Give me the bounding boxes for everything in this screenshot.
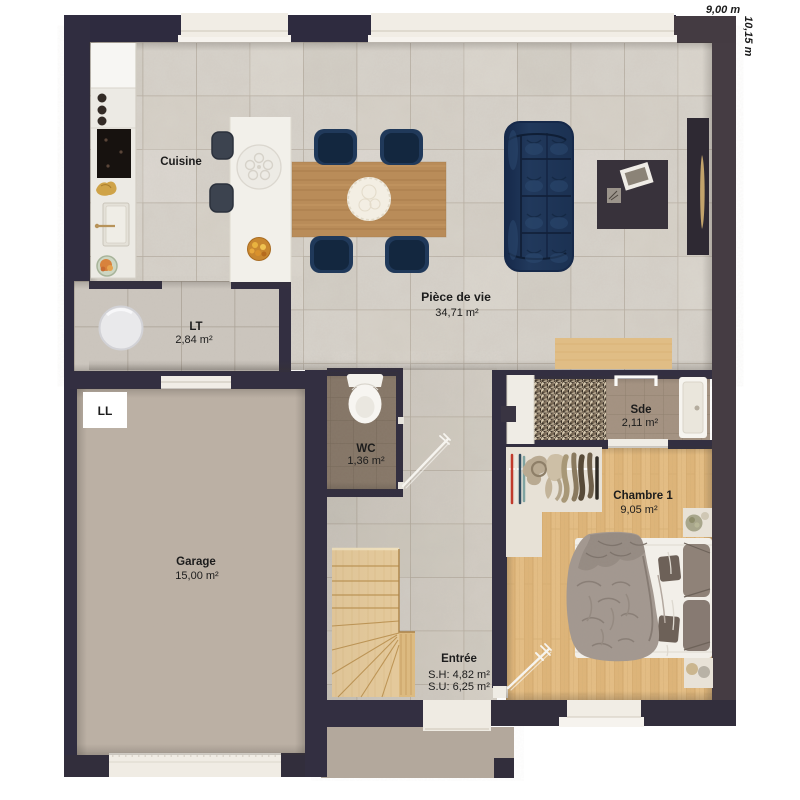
svg-text:Entrée: Entrée xyxy=(441,653,477,665)
svg-text:Chambre 1: Chambre 1 xyxy=(613,490,673,502)
svg-text:Pièce de vie: Pièce de vie xyxy=(421,290,491,304)
svg-text:LT: LT xyxy=(189,321,202,333)
svg-text:9,00 m: 9,00 m xyxy=(706,4,740,16)
svg-text:1,36 m²: 1,36 m² xyxy=(347,455,385,467)
svg-text:34,71 m²: 34,71 m² xyxy=(435,307,479,319)
svg-text:2,84 m²: 2,84 m² xyxy=(175,334,213,346)
svg-text:Sde: Sde xyxy=(630,404,651,416)
svg-text:10,15 m: 10,15 m xyxy=(742,16,754,57)
svg-text:9,05 m²: 9,05 m² xyxy=(620,504,658,516)
svg-text:15,00 m²: 15,00 m² xyxy=(175,570,219,582)
svg-text:Cuisine: Cuisine xyxy=(160,156,202,168)
svg-text:LL: LL xyxy=(98,404,113,418)
svg-text:Garage: Garage xyxy=(176,556,216,568)
svg-text:S.H: 4,82 m²: S.H: 4,82 m² xyxy=(428,669,490,681)
svg-text:S.U: 6,25 m²: S.U: 6,25 m² xyxy=(428,681,490,693)
svg-text:2,11 m²: 2,11 m² xyxy=(622,417,659,429)
svg-text:WC: WC xyxy=(356,443,375,455)
